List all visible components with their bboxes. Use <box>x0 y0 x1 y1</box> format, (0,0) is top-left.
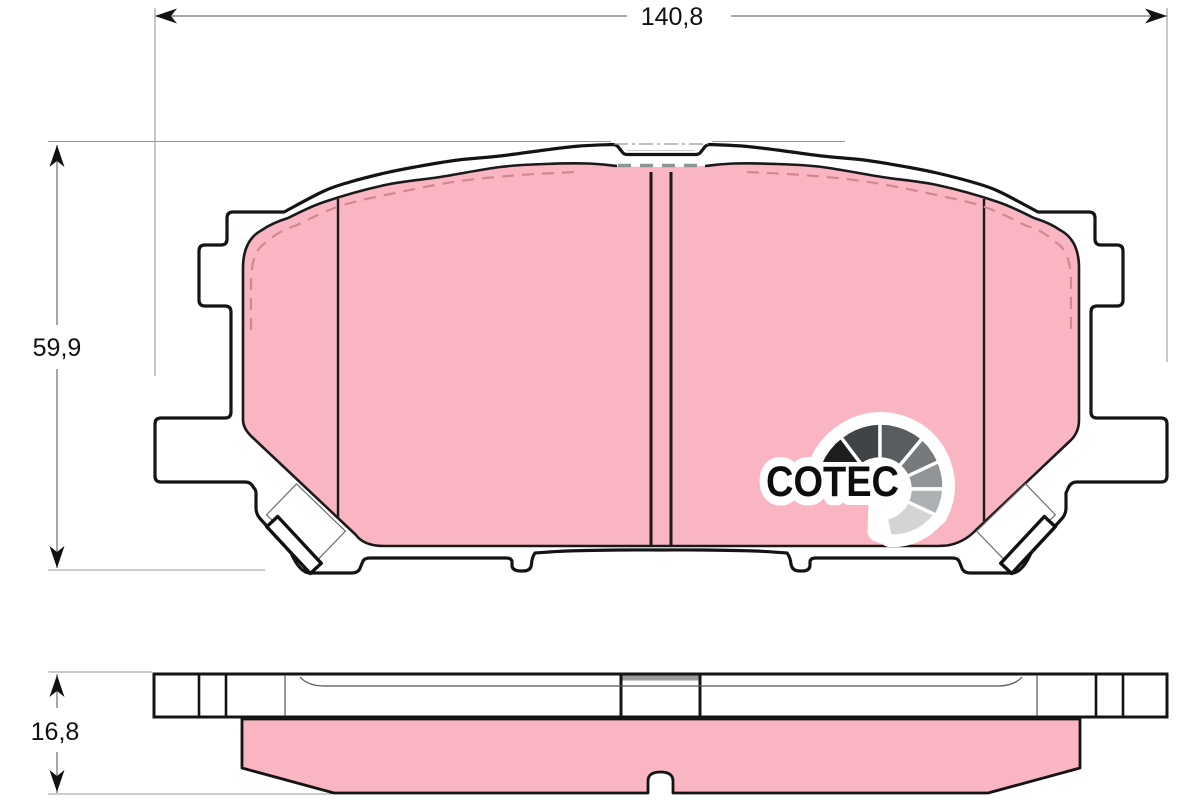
svg-text:140,8: 140,8 <box>641 3 704 31</box>
svg-text:COTEC: COTEC <box>766 458 899 506</box>
svg-text:16,8: 16,8 <box>31 718 80 746</box>
svg-text:59,9: 59,9 <box>33 334 82 362</box>
